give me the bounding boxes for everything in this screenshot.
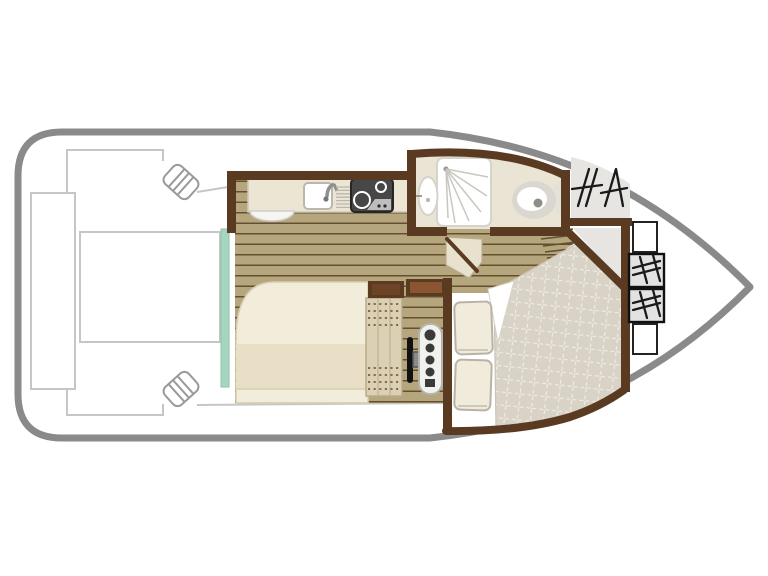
deck-hatch — [629, 254, 664, 287]
bow-window — [633, 324, 657, 354]
bathroom-bottom-wall-left — [407, 227, 447, 236]
bow-cabin-left-wall — [443, 278, 452, 430]
shower — [437, 158, 491, 226]
instrument-panel — [419, 324, 442, 394]
stove — [351, 179, 393, 212]
storage-cabinet-right — [406, 279, 446, 296]
boat-floor-plan — [0, 0, 768, 576]
saloon-top-wall — [227, 171, 411, 180]
sliding-door — [221, 229, 229, 387]
bathroom-left-wall — [407, 150, 416, 236]
pillow — [454, 301, 493, 354]
bathroom-bottom-wall-right — [490, 227, 570, 236]
stern-table — [80, 232, 220, 342]
storage-cabinet-left — [368, 281, 404, 298]
bow-window — [633, 222, 657, 252]
stern-bench — [31, 193, 75, 389]
saloon-left-wall — [227, 171, 236, 233]
toilet — [512, 181, 569, 219]
pillow — [454, 359, 492, 410]
steering-wheel-icon — [407, 337, 413, 383]
saloon-double-bed — [236, 282, 368, 403]
deck-hatch — [629, 289, 664, 322]
